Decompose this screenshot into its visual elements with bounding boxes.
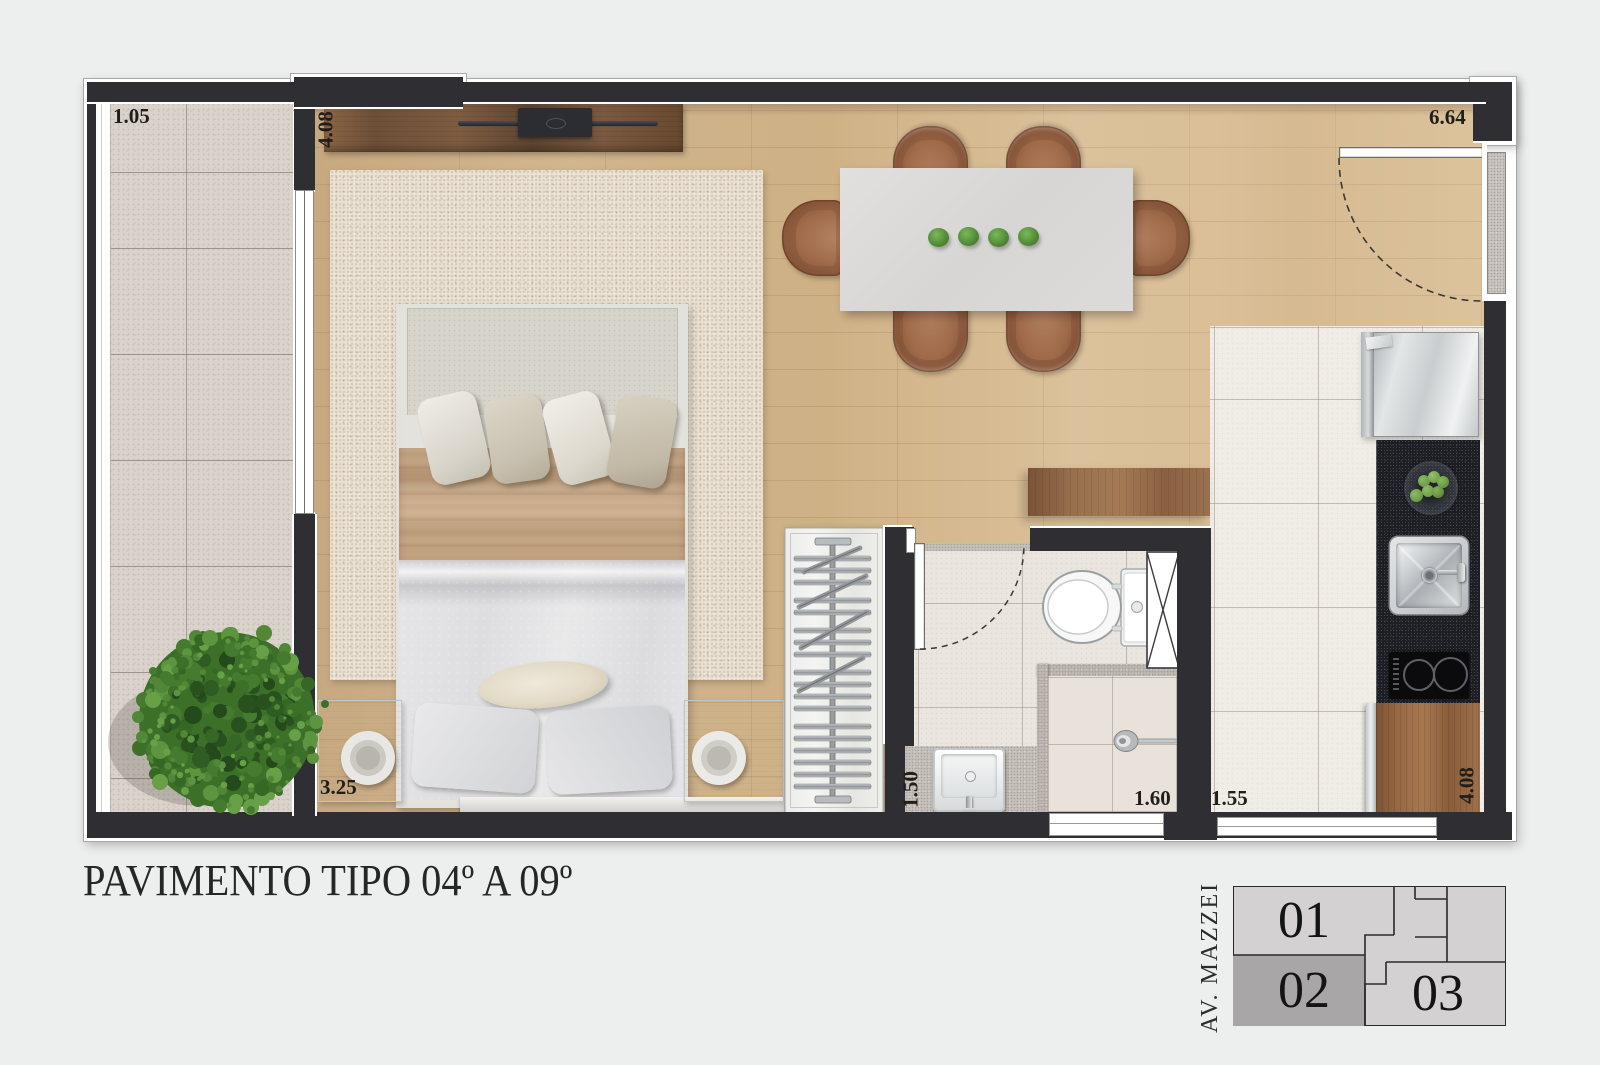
svg-text:02: 02 [1278, 962, 1330, 1019]
svg-text:03: 03 [1412, 965, 1464, 1022]
svg-text:01: 01 [1278, 892, 1330, 949]
